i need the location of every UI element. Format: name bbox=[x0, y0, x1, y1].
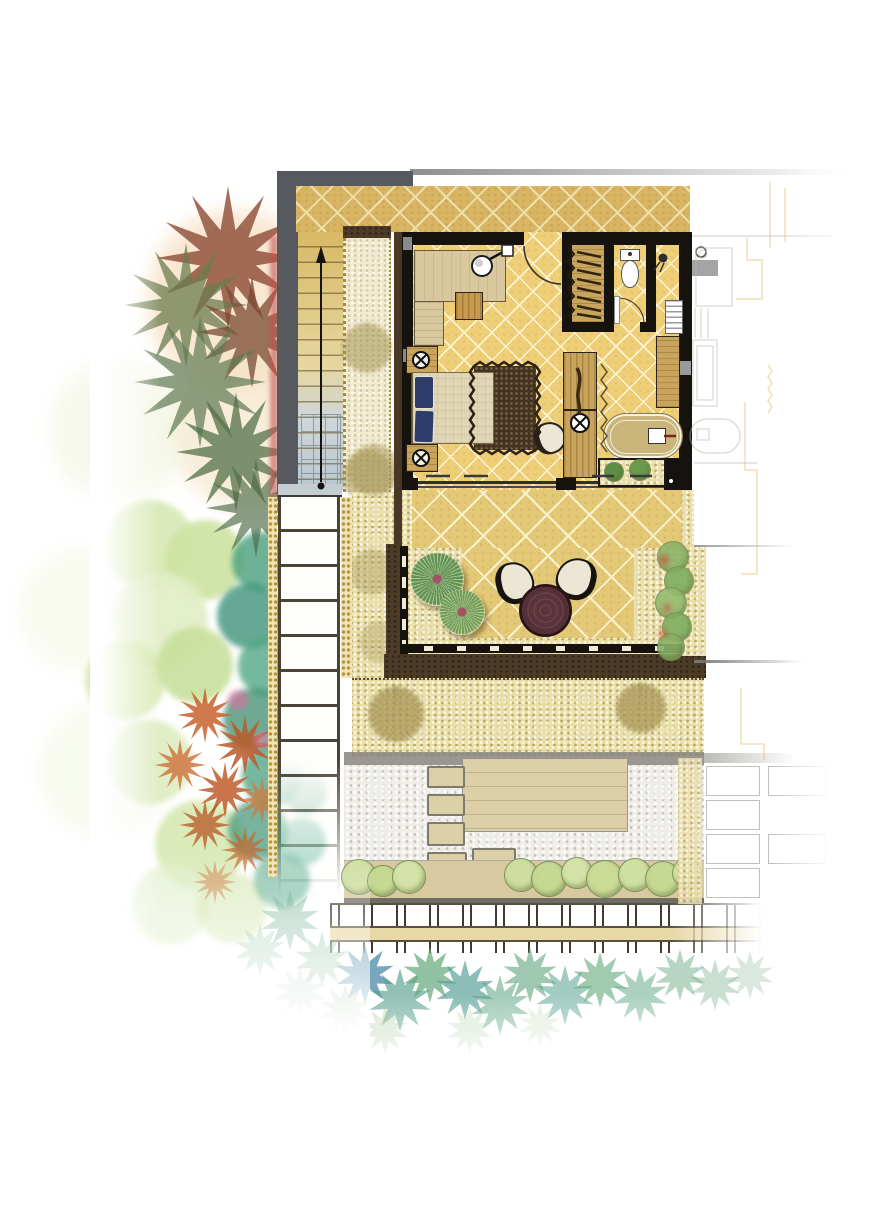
neighbor-stone bbox=[706, 800, 760, 830]
neighbor-stone bbox=[706, 868, 760, 898]
path-gold-strip-right bbox=[341, 497, 352, 678]
plant-palmetto bbox=[689, 959, 741, 1011]
path-top-landing bbox=[278, 484, 342, 497]
neighbor-stone bbox=[706, 766, 760, 796]
neighbor-gravel-strip bbox=[678, 758, 702, 904]
plant-palmetto bbox=[654, 949, 706, 1001]
neighbor-stone bbox=[768, 834, 826, 864]
neighbor-stone-grid bbox=[704, 760, 854, 908]
bottom-palmetto-row bbox=[0, 0, 880, 1219]
neighbor-stone bbox=[706, 834, 760, 864]
stepping-path bbox=[278, 497, 340, 921]
neighbor-stone bbox=[768, 766, 826, 796]
neighbor-rail-fade bbox=[694, 660, 804, 663]
floor-plan-canvas bbox=[0, 0, 880, 1219]
path-gold-strip-left bbox=[268, 497, 277, 877]
neighbor-line-fade bbox=[694, 545, 794, 547]
